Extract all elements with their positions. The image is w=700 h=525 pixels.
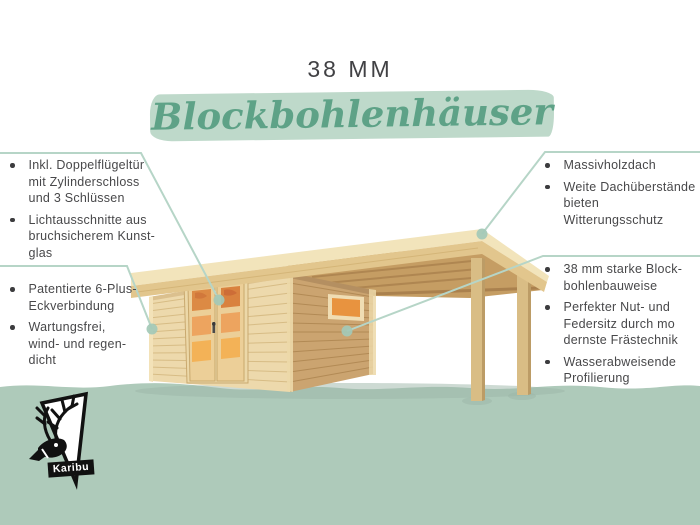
feature-text: Wartungsfrei, wind- und regen- dicht — [29, 319, 127, 369]
feature-text: Inkl. Doppelflügeltür mit Zylinderschlos… — [29, 157, 145, 207]
bullet-icon — [545, 185, 550, 190]
bullet-icon — [10, 163, 15, 168]
bullet-icon — [545, 163, 550, 168]
feature-list-top-right: Massivholzdach Weite Dachüberstände biet… — [543, 157, 700, 233]
brand-name: Karibu — [48, 459, 95, 477]
bullet-icon — [545, 305, 550, 310]
feature-item: Massivholzdach — [543, 157, 700, 174]
feature-item: Weite Dachüberstände bieten Witterungssc… — [543, 179, 700, 229]
door-pane — [221, 312, 240, 333]
brand-logo — [16, 388, 106, 493]
feature-text: Perfekter Nut- und Federsitz durch mo de… — [564, 299, 679, 349]
door-pane — [221, 337, 240, 359]
deer-head — [29, 438, 67, 461]
bullet-icon — [10, 287, 15, 292]
feature-item: Perfekter Nut- und Federsitz durch mo de… — [543, 299, 700, 349]
feature-item: Inkl. Doppelflügeltür mit Zylinderschlos… — [8, 157, 158, 207]
callout-dot — [477, 229, 488, 240]
feature-item: Wasserabweisende Profilierung — [543, 354, 700, 387]
feature-text: 38 mm starke Block- bohlenbauweise — [564, 261, 683, 294]
corner-board — [369, 289, 376, 375]
corner-board — [287, 273, 293, 392]
bullet-icon — [545, 360, 550, 365]
door-pane — [192, 289, 211, 311]
feature-item: Wartungsfrei, wind- und regen- dicht — [8, 319, 158, 369]
door-pane — [192, 315, 211, 336]
callout-dot — [214, 295, 225, 306]
feature-list-bottom-right: 38 mm starke Block- bohlenbauweise Perfe… — [543, 261, 700, 392]
product-poster: 38 MM Blockbohlenhäuser Inkl. Doppelflüg… — [0, 0, 700, 525]
feature-list-top-left: Inkl. Doppelflügeltür mit Zylinderschlos… — [8, 157, 158, 266]
size-label: 38 MM — [0, 56, 700, 83]
feature-item: Patentierte 6-Plus- Eckverbindung — [8, 281, 158, 314]
feature-item: 38 mm starke Block- bohlenbauweise — [543, 261, 700, 294]
feature-text: Massivholzdach — [564, 157, 656, 174]
door-handle — [212, 322, 216, 333]
feature-text: Wasserabweisende Profilierung — [564, 354, 677, 387]
bullet-icon — [10, 325, 15, 330]
bullet-icon — [545, 267, 550, 272]
side-window — [328, 294, 364, 321]
feature-list-bottom-left: Patentierte 6-Plus- Eckverbindung Wartun… — [8, 281, 158, 374]
feature-text: Patentierte 6-Plus- Eckverbindung — [29, 281, 137, 314]
product-heading: Blockbohlenhäuser — [140, 85, 565, 143]
side-wall — [290, 273, 376, 392]
feature-text: Lichtausschnitte aus bruchsicherem Kunst… — [29, 212, 156, 262]
door-pane — [221, 286, 240, 308]
door-pane — [192, 340, 211, 362]
bullet-icon — [10, 218, 15, 223]
feature-text: Weite Dachüberstände bieten Witterungssc… — [564, 179, 700, 229]
callout-dot — [342, 326, 353, 337]
feature-item: Lichtausschnitte aus bruchsicherem Kunst… — [8, 212, 158, 262]
house-shadow — [135, 383, 565, 399]
